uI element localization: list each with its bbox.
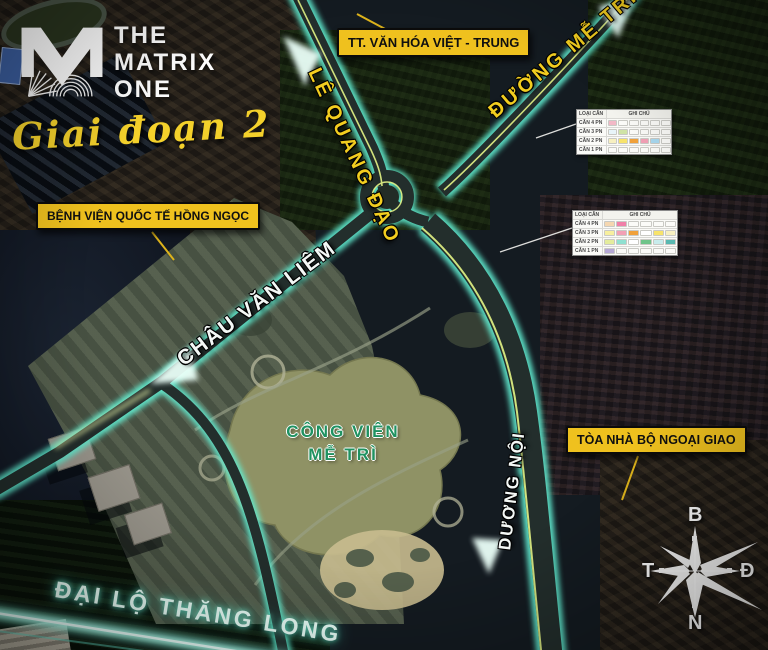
legend-swatch [665, 248, 676, 254]
legend-swatch [628, 239, 639, 245]
legend-swatch [604, 248, 615, 254]
legend-swatch [618, 120, 628, 126]
legend-swatch [650, 138, 660, 144]
legend-unit-type: CĂN 1 PN [573, 247, 603, 255]
legend-unit-type: CĂN 3 PN [573, 229, 603, 237]
logo-line-2: MATRIX [114, 49, 216, 76]
legend-swatch [653, 230, 664, 236]
legend-swatch [616, 248, 627, 254]
compass-label-west: T [642, 560, 654, 583]
logo: THE MATRIX ONE [18, 22, 216, 103]
legend-unit-type: CĂN 4 PN [577, 119, 607, 127]
legend-unit-type: CĂN 3 PN [577, 128, 607, 136]
legend-swatch [618, 129, 628, 135]
legend-table-2: LOẠI CĂNGHI CHÚCĂN 4 PNCĂN 3 PNCĂN 2 PNC… [572, 210, 678, 256]
legend-swatch [661, 129, 671, 135]
legend-swatch [628, 221, 639, 227]
logo-title: THE MATRIX ONE [114, 22, 216, 103]
legend-swatch [640, 147, 650, 153]
legend-swatch [628, 230, 639, 236]
legend-swatch [661, 138, 671, 144]
legend-swatch [608, 129, 618, 135]
trees-texture-topright [588, 0, 768, 215]
legend-header-note: GHI CHÚ [607, 110, 671, 118]
legend-swatch [629, 120, 639, 126]
legend-swatch [616, 221, 627, 227]
legend-unit-type: CĂN 2 PN [577, 137, 607, 145]
park-name-line-2: MỄ TRÌ [258, 443, 428, 466]
legend-swatch [650, 120, 660, 126]
legend-header-type: LOẠI CĂN [573, 211, 603, 219]
compass-rose: B Đ N T [638, 508, 768, 643]
legend-swatch [608, 120, 618, 126]
poi-label-hospital: BỆNH VIỆN QUỐC TẾ HỒNG NGỌC [36, 202, 260, 230]
legend-row: CĂN 1 PN [573, 246, 677, 255]
legend-swatch [640, 138, 650, 144]
legend-swatch [618, 138, 628, 144]
legend-swatch [640, 120, 650, 126]
legend-swatch [640, 230, 651, 236]
legend-row: CĂN 3 PN [577, 127, 671, 136]
legend-swatch [640, 248, 651, 254]
legend-swatch [640, 221, 651, 227]
poi-label-cultural-center: TT. VĂN HÓA VIỆT - TRUNG [337, 28, 530, 57]
legend-unit-type: CĂN 2 PN [573, 238, 603, 246]
legend-swatch [608, 138, 618, 144]
map-canvas: 0102050604030205030403020104050312110206… [0, 0, 768, 650]
poi-label-ministry: TÒA NHÀ BỘ NGOẠI GIAO [566, 426, 747, 454]
legend-swatch [629, 138, 639, 144]
park-name-line-1: CÔNG VIÊN [258, 420, 428, 443]
logo-line-1: THE [114, 22, 216, 49]
legend-table-1: LOẠI CĂNGHI CHÚCĂN 4 PNCĂN 3 PNCĂN 2 PNC… [576, 109, 672, 155]
legend-row: CĂN 2 PN [573, 237, 677, 246]
legend-row: CĂN 2 PN [577, 136, 671, 145]
legend-swatch [616, 230, 627, 236]
legend-header-note: GHI CHÚ [603, 211, 677, 219]
legend-swatch [608, 147, 618, 153]
logo-line-3: ONE [114, 76, 216, 103]
legend-swatch [629, 147, 639, 153]
connector-legend-1 [536, 124, 576, 138]
legend-swatch [604, 221, 615, 227]
compass-label-east: Đ [740, 560, 754, 583]
legend-swatch [665, 239, 676, 245]
legend-unit-type: CĂN 4 PN [573, 220, 603, 228]
legend-row: CĂN 3 PN [573, 228, 677, 237]
legend-row: CĂN 1 PN [577, 145, 671, 154]
legend-swatch [653, 248, 664, 254]
legend-swatch [661, 120, 671, 126]
legend-swatch [640, 239, 651, 245]
legend-swatch [640, 129, 650, 135]
legend-swatch [618, 147, 628, 153]
compass-label-south: N [688, 612, 702, 635]
legend-row: CĂN 4 PN [577, 118, 671, 127]
legend-swatch [604, 239, 615, 245]
legend-swatch [650, 147, 660, 153]
legend-swatch [604, 230, 615, 236]
legend-swatch [628, 248, 639, 254]
legend-swatch [661, 147, 671, 153]
legend-swatch [653, 221, 664, 227]
legend-swatch [665, 221, 676, 227]
legend-swatch [665, 230, 676, 236]
legend-row: CĂN 4 PN [573, 219, 677, 228]
legend-swatch [629, 129, 639, 135]
legend-unit-type: CĂN 1 PN [577, 146, 607, 154]
legend-swatch [616, 239, 627, 245]
compass-label-north: B [688, 504, 702, 527]
road-name-duong-noi: DƯƠNG NỘI [495, 430, 529, 551]
park-name: CÔNG VIÊN MỄ TRÌ [258, 420, 428, 466]
legend-swatch [653, 239, 664, 245]
legend-header-type: LOẠI CĂN [577, 110, 607, 118]
legend-header: LOẠI CĂNGHI CHÚ [577, 110, 671, 118]
matrix-one-logo-mark [18, 22, 106, 102]
legend-header: LOẠI CĂNGHI CHÚ [573, 211, 677, 219]
legend-swatch [650, 129, 660, 135]
